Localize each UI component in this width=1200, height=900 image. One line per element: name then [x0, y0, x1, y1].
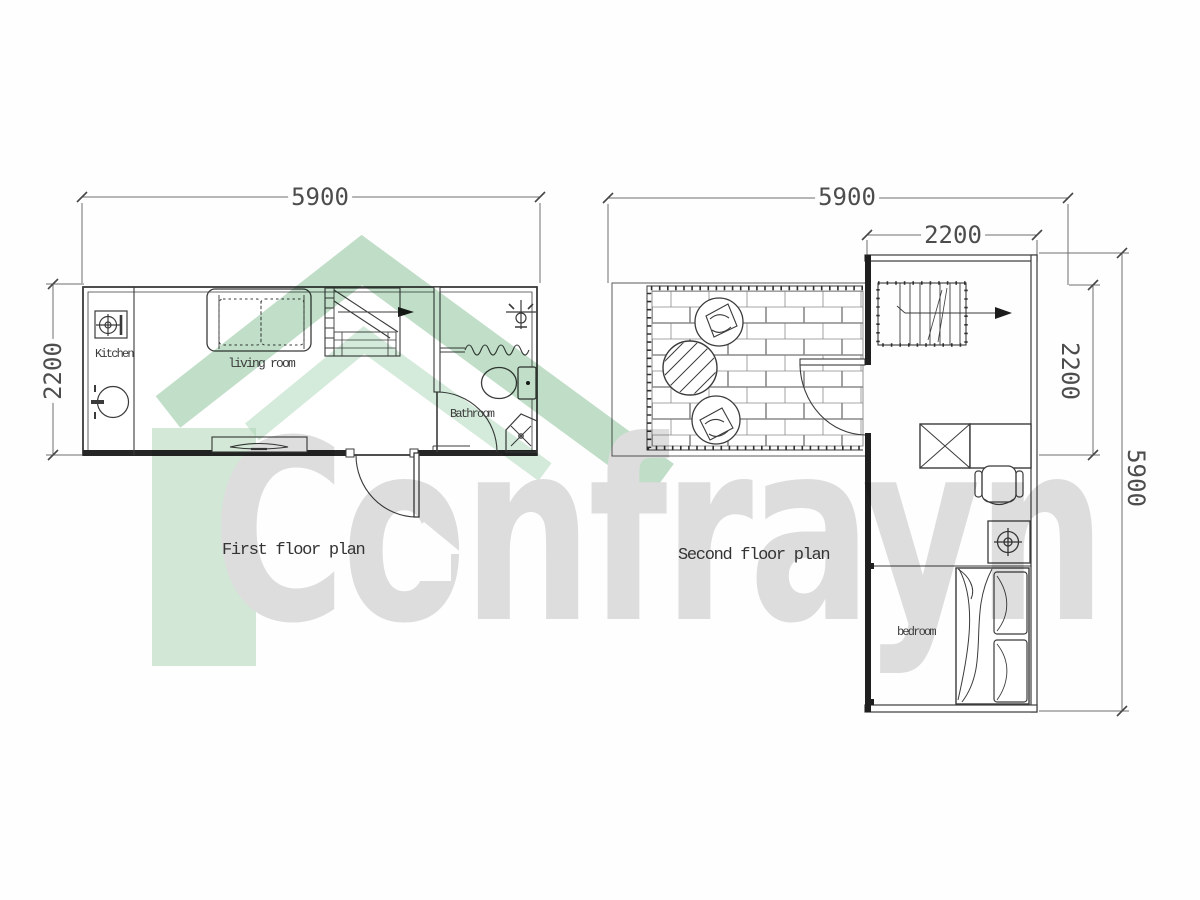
desk-chair-icon [975, 466, 1023, 505]
terrace-chair-icon [695, 298, 743, 346]
desk-icon [970, 424, 1031, 468]
room-wall-top [865, 255, 1037, 261]
cooktop-icon [988, 521, 1030, 563]
bed-icon [956, 568, 1029, 704]
terrace-chair-icon [692, 396, 740, 444]
tv-stand-icon [212, 437, 307, 452]
room-wall-right [1031, 255, 1037, 712]
first-floor-plan [83, 287, 537, 517]
room-wall-left [865, 255, 871, 365]
floor-plan-page: Confrayn 5900 2200 5900 2200 2200 5900 K… [0, 0, 1200, 900]
room-wall-bottom [865, 705, 1037, 712]
staircase-icon [878, 283, 1012, 345]
first-floor-walls [83, 287, 537, 455]
room-wall-left [865, 433, 871, 712]
second-floor-plan [612, 255, 1037, 712]
entrance-door-icon [356, 453, 419, 517]
bathroom-wall [434, 287, 440, 392]
wardrobe-icon [920, 424, 970, 468]
floor-plan-drawing [0, 0, 1200, 900]
